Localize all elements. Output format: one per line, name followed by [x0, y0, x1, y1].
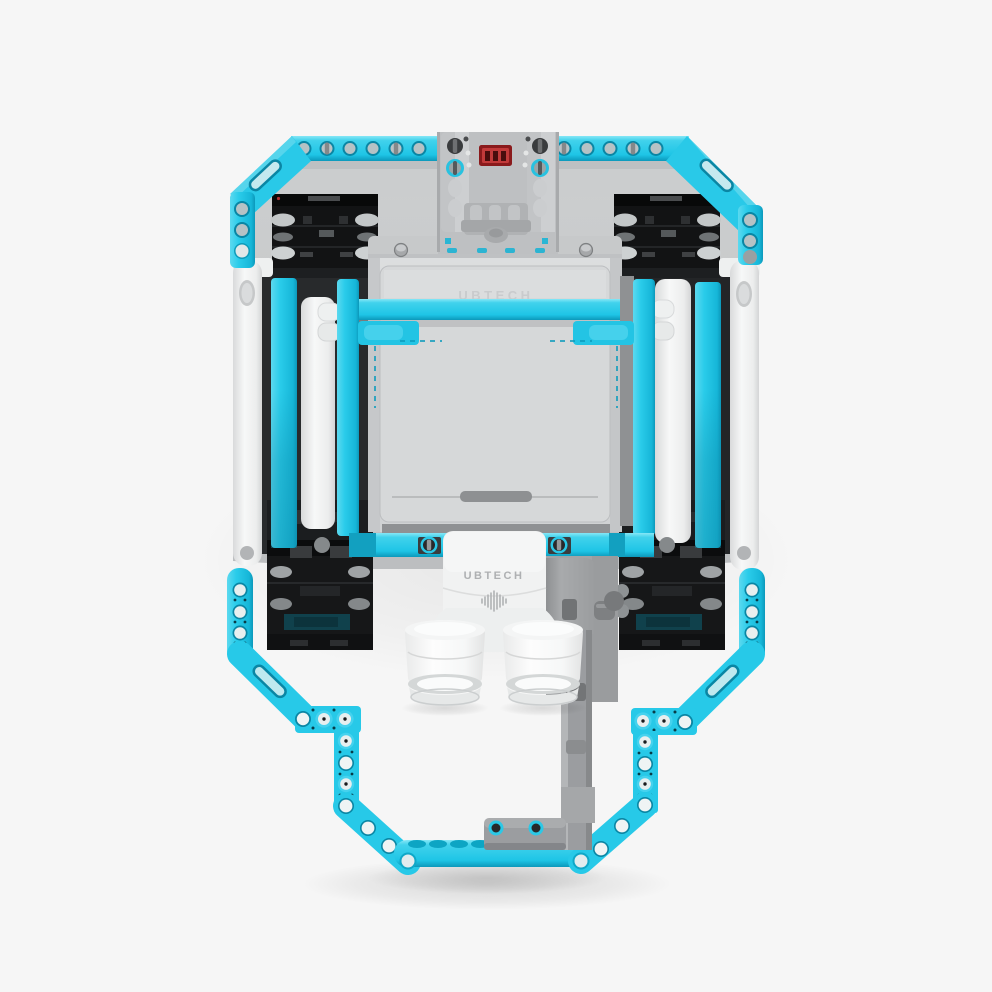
svg-text:UBTECH: UBTECH	[464, 570, 525, 582]
